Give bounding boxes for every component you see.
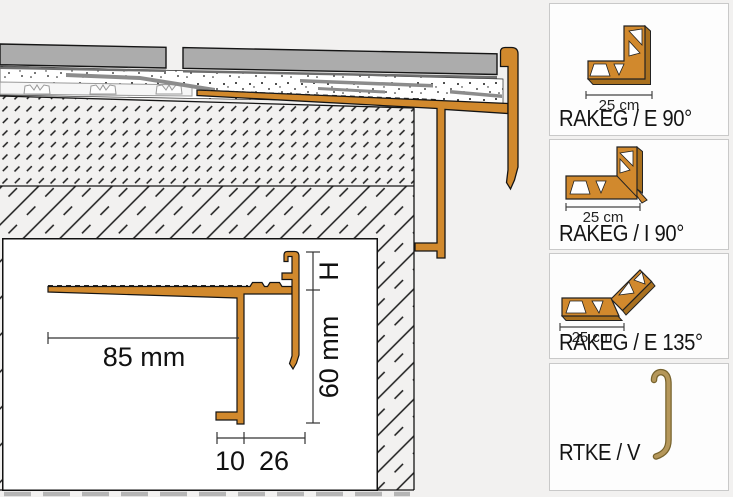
product-panel-rakeg-e135[interactable]: 25 cm RAKEG / E 135° [549, 253, 729, 359]
corner-internal-90-icon: 25 cm [550, 140, 728, 224]
balcony-profile-datasheet: 85 mm H 60 mm 10 26 [0, 0, 733, 497]
product-panel-rtke-v[interactable]: RTKE / V [549, 363, 729, 491]
dim-10-label: 10 [215, 446, 245, 476]
edge-profile-fascia [501, 48, 519, 190]
dim-60-label: 60 mm [314, 316, 344, 399]
product-panel-rakeg-i90[interactable]: 25 cm RAKEG / I 90° [549, 139, 729, 250]
dim-85-label: 85 mm [103, 342, 186, 372]
profile-detail-inset: 85 mm H 60 mm 10 26 [2, 238, 378, 491]
product-name: RAKEG / E 135° [559, 331, 703, 354]
product-panel-rakeg-e90[interactable]: 25 cm RAKEG / E 90° [549, 3, 729, 136]
dim-h-label: H [314, 261, 344, 281]
vertical-connector-icon [550, 364, 728, 490]
product-name: RAKEG / I 90° [559, 222, 684, 245]
dim-26-label: 26 [259, 446, 289, 476]
corner-external-90-icon: 25 cm [550, 4, 728, 112]
product-name: RTKE / V [559, 441, 640, 464]
drainage-mat-layer [0, 82, 192, 96]
product-name: RAKEG / E 90° [559, 107, 692, 130]
